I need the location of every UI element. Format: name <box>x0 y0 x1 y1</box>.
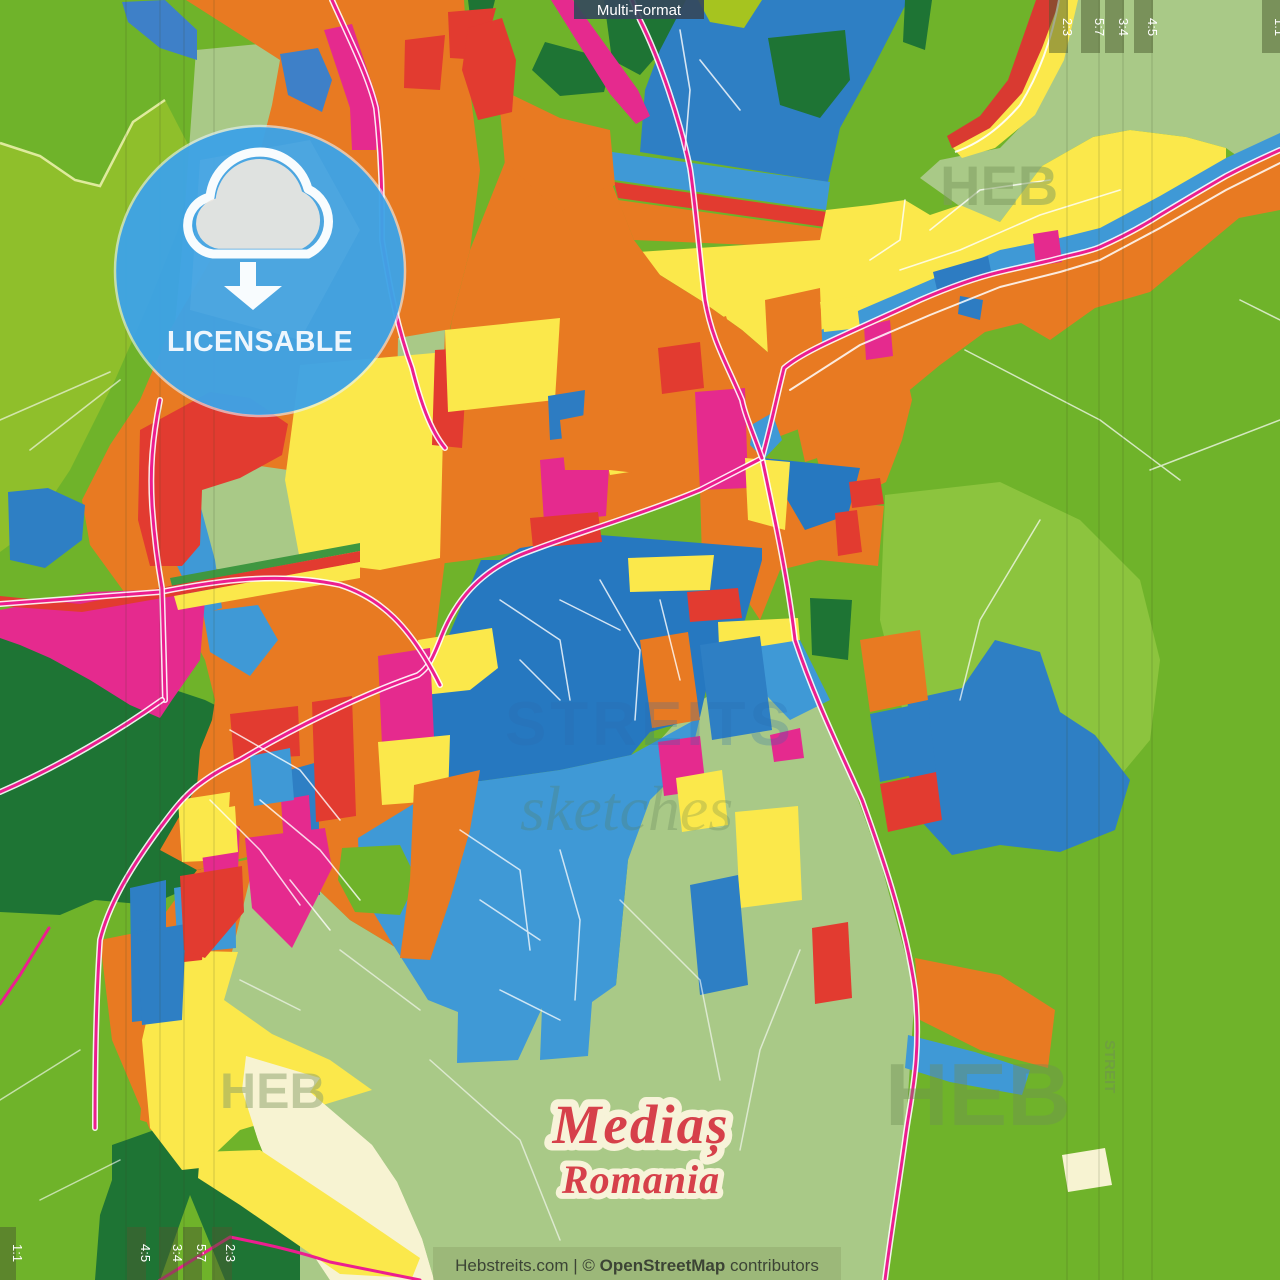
svg-text:STREITS: STREITS <box>505 690 795 759</box>
svg-text:Mediaș: Mediaș <box>552 1094 730 1158</box>
svg-text:HEB: HEB <box>220 1063 326 1119</box>
svg-text:3:4: 3:4 <box>170 1244 185 1262</box>
svg-text:HEB: HEB <box>885 1045 1071 1144</box>
svg-text:HEB: HEB <box>940 154 1058 217</box>
svg-text:1:1: 1:1 <box>10 1244 25 1262</box>
svg-text:3:4: 3:4 <box>1116 18 1131 36</box>
svg-text:2:3: 2:3 <box>223 1244 238 1262</box>
svg-text:STREIT: STREIT <box>1101 1040 1118 1093</box>
svg-text:LICENSABLE: LICENSABLE <box>167 326 353 358</box>
svg-text:4:5: 4:5 <box>1145 18 1160 36</box>
svg-text:5:7: 5:7 <box>1092 18 1107 36</box>
svg-text:Hebstreits.com | © OpenStreetM: Hebstreits.com | © OpenStreetMap contrib… <box>455 1256 819 1275</box>
svg-text:1:1: 1:1 <box>1272 18 1280 36</box>
svg-text:Multi-Format: Multi-Format <box>597 2 682 19</box>
svg-text:Romania: Romania <box>561 1157 720 1202</box>
svg-text:5:7: 5:7 <box>194 1244 209 1262</box>
svg-text:4:5: 4:5 <box>138 1244 153 1262</box>
svg-text:sketches: sketches <box>520 773 733 844</box>
svg-text:2:3: 2:3 <box>1060 18 1075 36</box>
